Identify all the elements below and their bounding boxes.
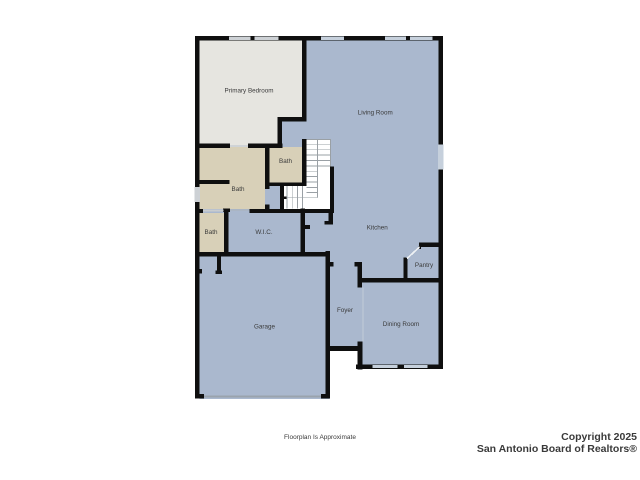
svg-text:Foyer: Foyer [337, 307, 353, 314]
svg-text:Bath: Bath [232, 186, 245, 193]
svg-text:Kitchen: Kitchen [367, 225, 389, 232]
svg-text:Living Room: Living Room [358, 110, 393, 117]
svg-text:Garage: Garage [254, 324, 276, 331]
svg-text:Bath: Bath [205, 229, 218, 236]
svg-text:Floorplan Is Approximate: Floorplan Is Approximate [284, 434, 356, 441]
svg-text:Primary Bedroom: Primary Bedroom [225, 88, 274, 95]
svg-text:Dining Room: Dining Room [383, 321, 419, 328]
svg-text:Pantry: Pantry [415, 262, 434, 269]
svg-text:W.I.C.: W.I.C. [255, 229, 272, 236]
svg-text:San Antonio Board of Realtors®: San Antonio Board of Realtors® [477, 443, 637, 455]
svg-text:Bath: Bath [279, 158, 292, 165]
svg-text:Copyright 2025: Copyright 2025 [561, 431, 637, 443]
